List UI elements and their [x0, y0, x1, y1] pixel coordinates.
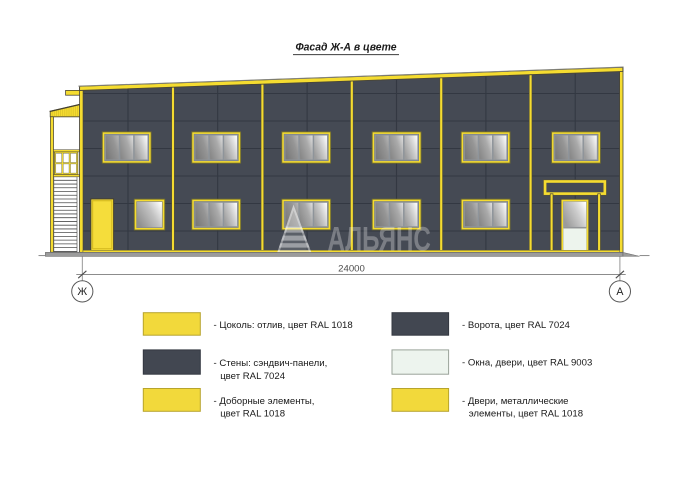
svg-text:- Окна, двери, цвет RAL 9003: - Окна, двери, цвет RAL 9003 [462, 358, 592, 369]
svg-text:цвет RAL 1018: цвет RAL 1018 [220, 409, 285, 420]
svg-text:- Стены: сэндвич-панели,: - Стены: сэндвич-панели, [214, 358, 328, 369]
svg-text:элементы, цвет RAL 1018: элементы, цвет RAL 1018 [469, 409, 583, 420]
svg-text:- Доборные элементы,: - Доборные элементы, [214, 396, 315, 407]
svg-text:- Цоколь: отлив, цвет RAL 1018: - Цоколь: отлив, цвет RAL 1018 [214, 320, 353, 331]
svg-text:цвет RAL 7024: цвет RAL 7024 [220, 371, 286, 382]
svg-text:24000: 24000 [338, 264, 365, 275]
svg-text:Фасад Ж-А в цвете: Фасад Ж-А в цвете [296, 42, 397, 54]
svg-text:- Двери, металлические: - Двери, металлические [462, 396, 569, 407]
svg-text:- Ворота, цвет RAL 7024: - Ворота, цвет RAL 7024 [462, 320, 571, 331]
svg-text:Ж: Ж [77, 286, 87, 298]
svg-text:А: А [616, 286, 624, 298]
